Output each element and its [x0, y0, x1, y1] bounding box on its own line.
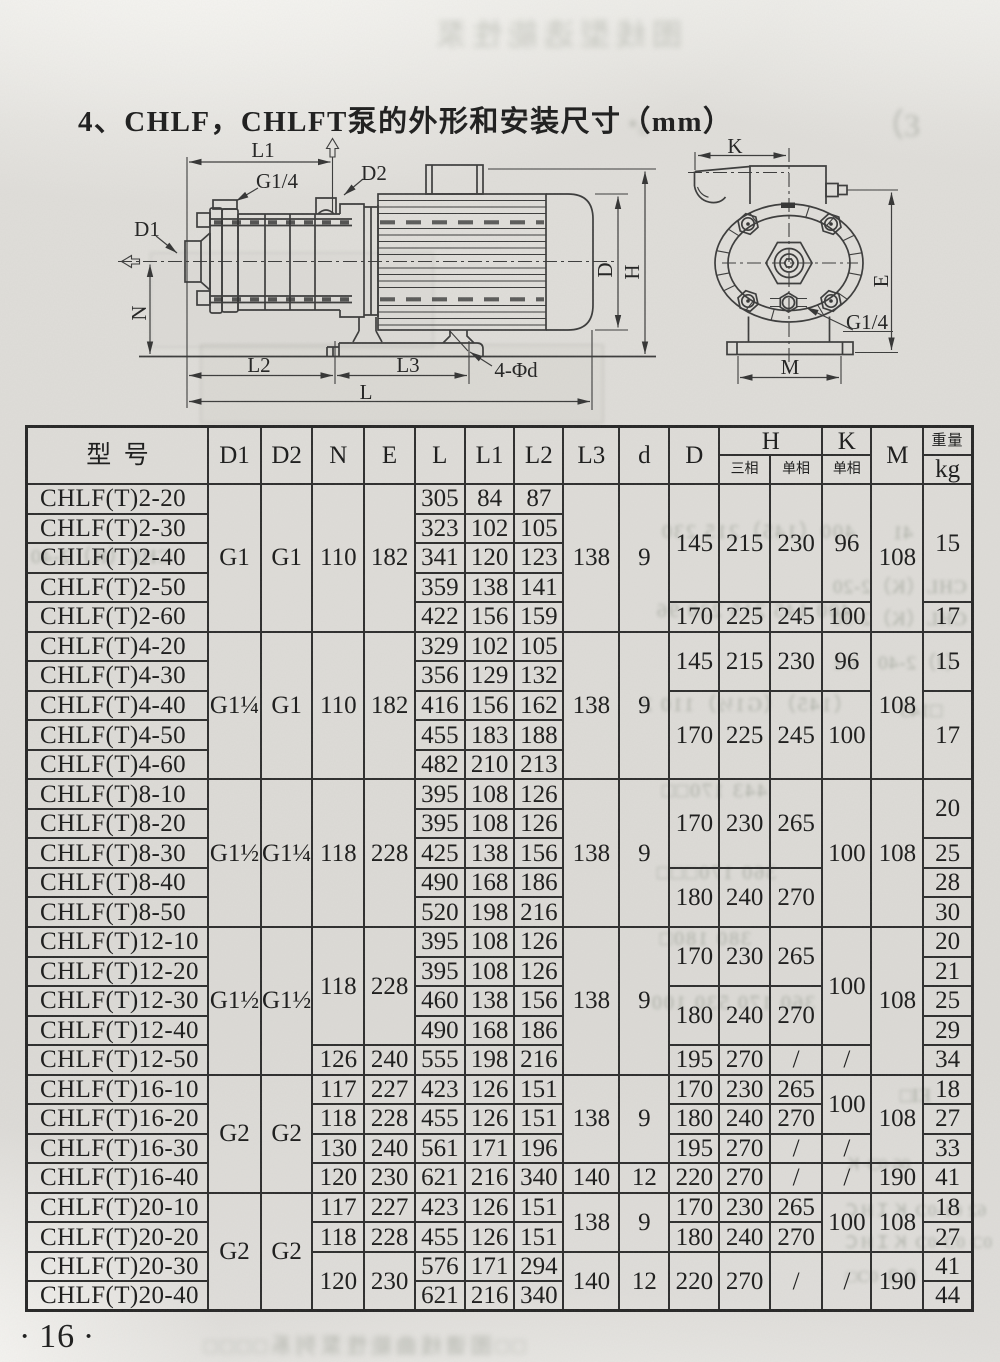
svg-text:D: D: [593, 262, 617, 277]
svg-text:D1: D1: [134, 217, 160, 241]
svg-text:N: N: [127, 305, 151, 320]
svg-text:4-Φd: 4-Φd: [494, 358, 538, 382]
svg-text:L1: L1: [251, 138, 274, 162]
svg-text:H: H: [620, 264, 644, 279]
svg-text:E: E: [869, 275, 893, 288]
svg-text:L2: L2: [247, 353, 270, 377]
svg-text:D2: D2: [361, 161, 387, 185]
svg-text:L: L: [360, 380, 373, 404]
svg-text:G1/4: G1/4: [846, 310, 889, 334]
svg-text:M: M: [781, 355, 800, 379]
svg-text:K: K: [727, 134, 742, 158]
svg-text:G1/4: G1/4: [256, 169, 299, 193]
svg-text:L3: L3: [396, 353, 419, 377]
